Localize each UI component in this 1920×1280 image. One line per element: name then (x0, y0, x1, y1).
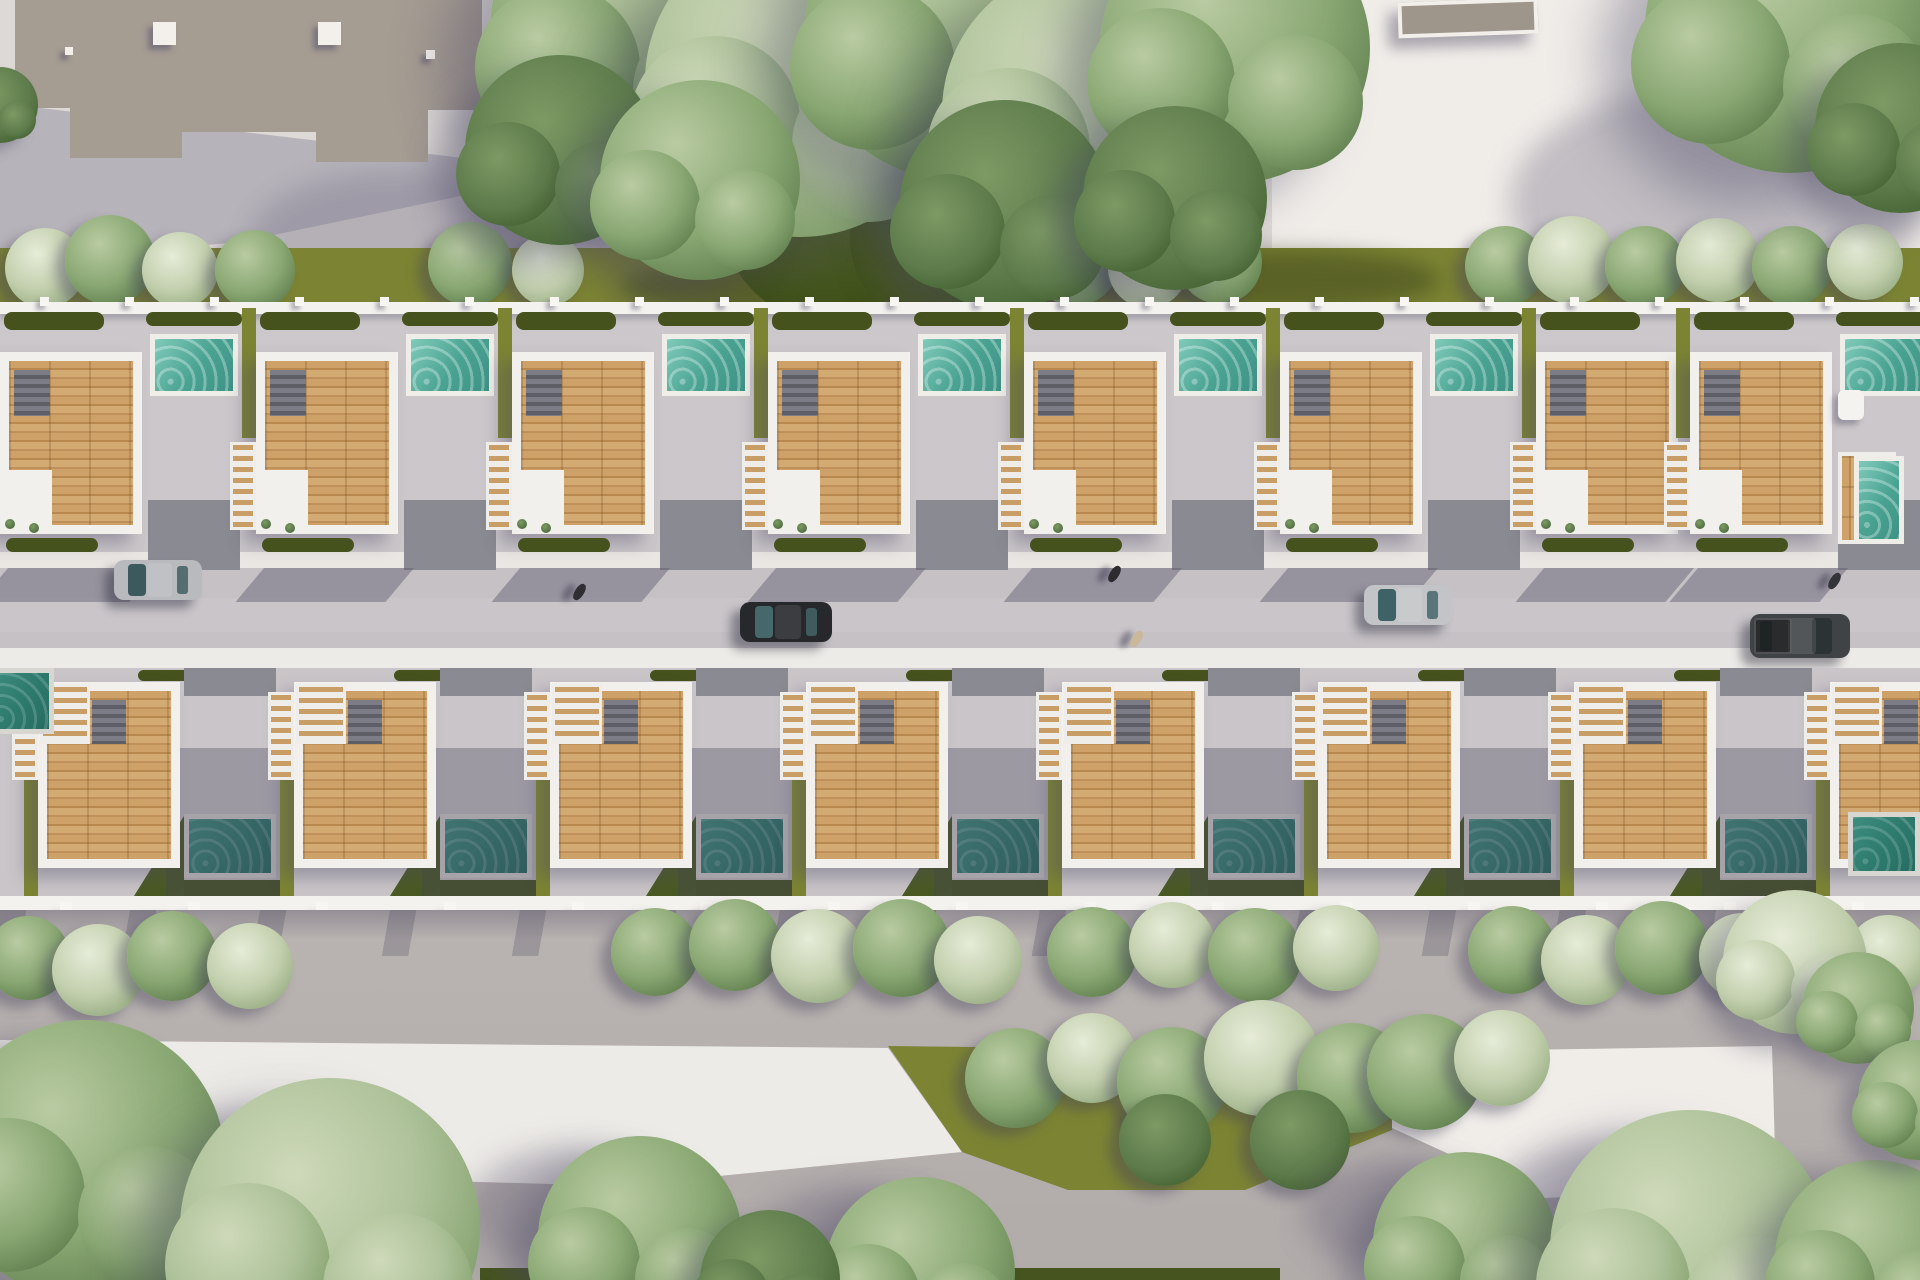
bush (771, 909, 865, 1003)
shrub (1285, 519, 1295, 529)
tree-canopy-lobe (1796, 991, 1858, 1053)
house-street-shadow (1669, 568, 1848, 602)
bush (1293, 905, 1379, 991)
entry-stairs (486, 442, 512, 530)
stair-landing (808, 684, 858, 744)
driveway (916, 500, 1008, 570)
car (740, 602, 832, 642)
backyard-hedge (516, 312, 616, 330)
wall-post (1230, 297, 1239, 306)
bush (611, 908, 699, 996)
wall-post (1825, 297, 1834, 306)
pool (1174, 334, 1262, 396)
stair-landing (1320, 684, 1370, 744)
car-rear-window (1427, 591, 1438, 618)
shrub (1541, 519, 1551, 529)
stair-block (1294, 370, 1330, 416)
wall-post (975, 297, 984, 306)
stair-landing (296, 684, 346, 744)
pool-hedge (1170, 312, 1266, 326)
wall-post (465, 297, 474, 306)
stair-block (1884, 700, 1918, 744)
garden-divider (24, 778, 38, 896)
shrub (5, 519, 15, 529)
pool (1848, 812, 1920, 876)
wall-post (1655, 297, 1664, 306)
garden-divider (1010, 308, 1024, 438)
pool (1854, 456, 1904, 544)
bush (428, 222, 512, 306)
shrub (517, 519, 527, 529)
bush (1605, 226, 1685, 306)
garden-divider (242, 308, 256, 438)
stair-landing (552, 684, 602, 744)
driveway (404, 500, 496, 570)
entry-stairs (1510, 442, 1536, 530)
bush (1676, 218, 1760, 302)
bush (1129, 902, 1215, 988)
bush (142, 232, 218, 308)
truck-bed (1754, 618, 1792, 655)
driveway (696, 668, 788, 696)
pool-hedge (914, 312, 1010, 326)
house-street-shadow (1515, 568, 1694, 602)
garden-divider (1048, 778, 1062, 896)
tree-canopy-lobe (890, 174, 1006, 290)
front-hedge (6, 538, 98, 552)
roof-vent (153, 22, 176, 45)
stair-block (92, 700, 126, 744)
entry-stairs (1254, 442, 1280, 530)
stair-landing (1832, 684, 1882, 744)
car-roof (147, 563, 172, 597)
bush (1752, 226, 1832, 306)
car-roof (775, 605, 801, 639)
tree-canopy-lobe (1170, 189, 1262, 281)
stair-block (14, 370, 50, 416)
small-building-roof (1397, 0, 1538, 38)
stair-block (1372, 700, 1406, 744)
backyard-hedge (1694, 312, 1794, 330)
wall-post (1315, 297, 1324, 306)
car-windshield (755, 606, 773, 638)
house-street-shadow (235, 568, 414, 602)
entry-stairs (268, 692, 294, 780)
tree-canopy-lobe (456, 122, 561, 227)
wall-post (550, 297, 559, 306)
shrub (29, 523, 39, 533)
backyard-hedge (772, 312, 872, 330)
backyard-hedge (260, 312, 360, 330)
wall-post (1400, 297, 1409, 306)
garden-divider (1522, 308, 1536, 438)
wall-post (40, 297, 49, 306)
garden-divider (754, 308, 768, 438)
pool-hedge (1426, 312, 1522, 326)
roof-vent (426, 50, 435, 59)
shrub (1565, 523, 1575, 533)
stair-block (526, 370, 562, 416)
wall-post (295, 297, 304, 306)
sidewalk-bottom (0, 648, 1920, 668)
pool (1840, 334, 1920, 396)
bush (1208, 908, 1302, 1002)
front-hedge (1030, 538, 1122, 552)
entry-stairs (1664, 442, 1690, 530)
wall-post (805, 297, 814, 306)
shrub (261, 519, 271, 529)
garden-divider (1266, 308, 1280, 438)
wall-post (125, 297, 134, 306)
aerial-site-plan (0, 0, 1920, 1280)
wall-post (1910, 297, 1919, 306)
stair-block (1116, 700, 1150, 744)
bush (127, 911, 217, 1001)
car (114, 560, 202, 600)
front-hedge (518, 538, 610, 552)
stair-block (1628, 700, 1662, 744)
entry-stairs (1548, 692, 1574, 780)
car-windshield (1378, 589, 1396, 621)
house-street-shadow (1003, 568, 1182, 602)
garden-divider (1676, 308, 1690, 438)
bush (1528, 216, 1616, 304)
pool (1430, 334, 1518, 396)
tree-canopy-lobe (590, 150, 700, 260)
front-hedge (1696, 538, 1788, 552)
car (1750, 614, 1850, 658)
driveway (1464, 668, 1556, 696)
wall-post (1740, 297, 1749, 306)
shrub (773, 519, 783, 529)
wall-post (1060, 297, 1069, 306)
entry-stairs (1036, 692, 1062, 780)
pool-hedge (402, 312, 498, 326)
stair-landing (1576, 684, 1626, 744)
wall-post (720, 297, 729, 306)
front-hedge (262, 538, 354, 552)
entry-stairs (1804, 692, 1830, 780)
patio-table (1838, 390, 1864, 420)
car-rear-window (806, 608, 817, 635)
bush (1454, 1010, 1550, 1106)
entry-stairs (230, 442, 256, 530)
driveway (952, 668, 1044, 696)
pool (0, 668, 54, 734)
wall-post (210, 297, 219, 306)
bush (207, 923, 293, 1009)
wall-post (1570, 297, 1579, 306)
backyard-hedge (1540, 312, 1640, 330)
tree-canopy-lobe (1852, 1082, 1918, 1148)
garden-divider (536, 778, 550, 896)
front-hedge (1542, 538, 1634, 552)
tree-canopy-lobe (695, 170, 795, 270)
garden-divider (1816, 778, 1830, 896)
car-roof (1397, 588, 1422, 622)
bush (1119, 1094, 1211, 1186)
bush (65, 215, 155, 305)
stair-block (1550, 370, 1586, 416)
shrub (1029, 519, 1039, 529)
driveway (1720, 668, 1812, 696)
car-rear-window (177, 566, 188, 593)
entry-stairs (1292, 692, 1318, 780)
pool-hedge (146, 312, 242, 326)
wall-post (635, 297, 644, 306)
stair-block (782, 370, 818, 416)
shrub (1695, 519, 1705, 529)
shrub (1053, 523, 1063, 533)
backyard-hedge (4, 312, 104, 330)
bush (1827, 224, 1903, 300)
roof-vent (318, 22, 341, 45)
pool (406, 334, 494, 396)
car-windshield (128, 564, 146, 596)
pool-hedge (658, 312, 754, 326)
entry-stairs (998, 442, 1024, 530)
garden-divider (1304, 778, 1318, 896)
bush (215, 230, 295, 310)
car-roof (1788, 618, 1816, 655)
stair-landing (1064, 684, 1114, 744)
roof-vent (65, 47, 73, 55)
garden-divider (280, 778, 294, 896)
driveway (1208, 668, 1300, 696)
pool-hedge (1836, 312, 1920, 326)
bush (934, 916, 1022, 1004)
driveway (1428, 500, 1520, 570)
pool (662, 334, 750, 396)
stair-block (1038, 370, 1074, 416)
house-street-shadow (747, 568, 926, 602)
entry-stairs (524, 692, 550, 780)
entry-stairs (742, 442, 768, 530)
stair-block (860, 700, 894, 744)
driveway (660, 500, 752, 570)
tree-canopy-lobe (1716, 940, 1795, 1019)
shrub (1309, 523, 1319, 533)
stair-block (270, 370, 306, 416)
wall-post (890, 297, 899, 306)
street-middle-highlight (0, 598, 1920, 632)
bush (689, 899, 781, 991)
shrub (285, 523, 295, 533)
shrub (541, 523, 551, 533)
garden-divider (1560, 778, 1574, 896)
backyard-hedge (1284, 312, 1384, 330)
bush (1047, 907, 1137, 997)
wall-post (380, 297, 389, 306)
garden-divider (498, 308, 512, 438)
pool (150, 334, 238, 396)
stair-block (348, 700, 382, 744)
entry-stairs (780, 692, 806, 780)
bush (512, 234, 584, 306)
wall-post (1145, 297, 1154, 306)
shrub (797, 523, 807, 533)
pool (918, 334, 1006, 396)
wall-post (1485, 297, 1494, 306)
stair-block (1704, 370, 1740, 416)
bush (1615, 901, 1709, 995)
front-hedge (774, 538, 866, 552)
shrub (1719, 523, 1729, 533)
driveway (440, 668, 532, 696)
backyard-hedge (1028, 312, 1128, 330)
driveway (184, 668, 276, 696)
garden-divider (792, 778, 806, 896)
front-hedge (1286, 538, 1378, 552)
stair-block (604, 700, 638, 744)
driveway (1172, 500, 1264, 570)
car (1364, 585, 1452, 625)
tree-canopy-lobe (1807, 103, 1901, 197)
tree-canopy-lobe (1074, 170, 1175, 271)
